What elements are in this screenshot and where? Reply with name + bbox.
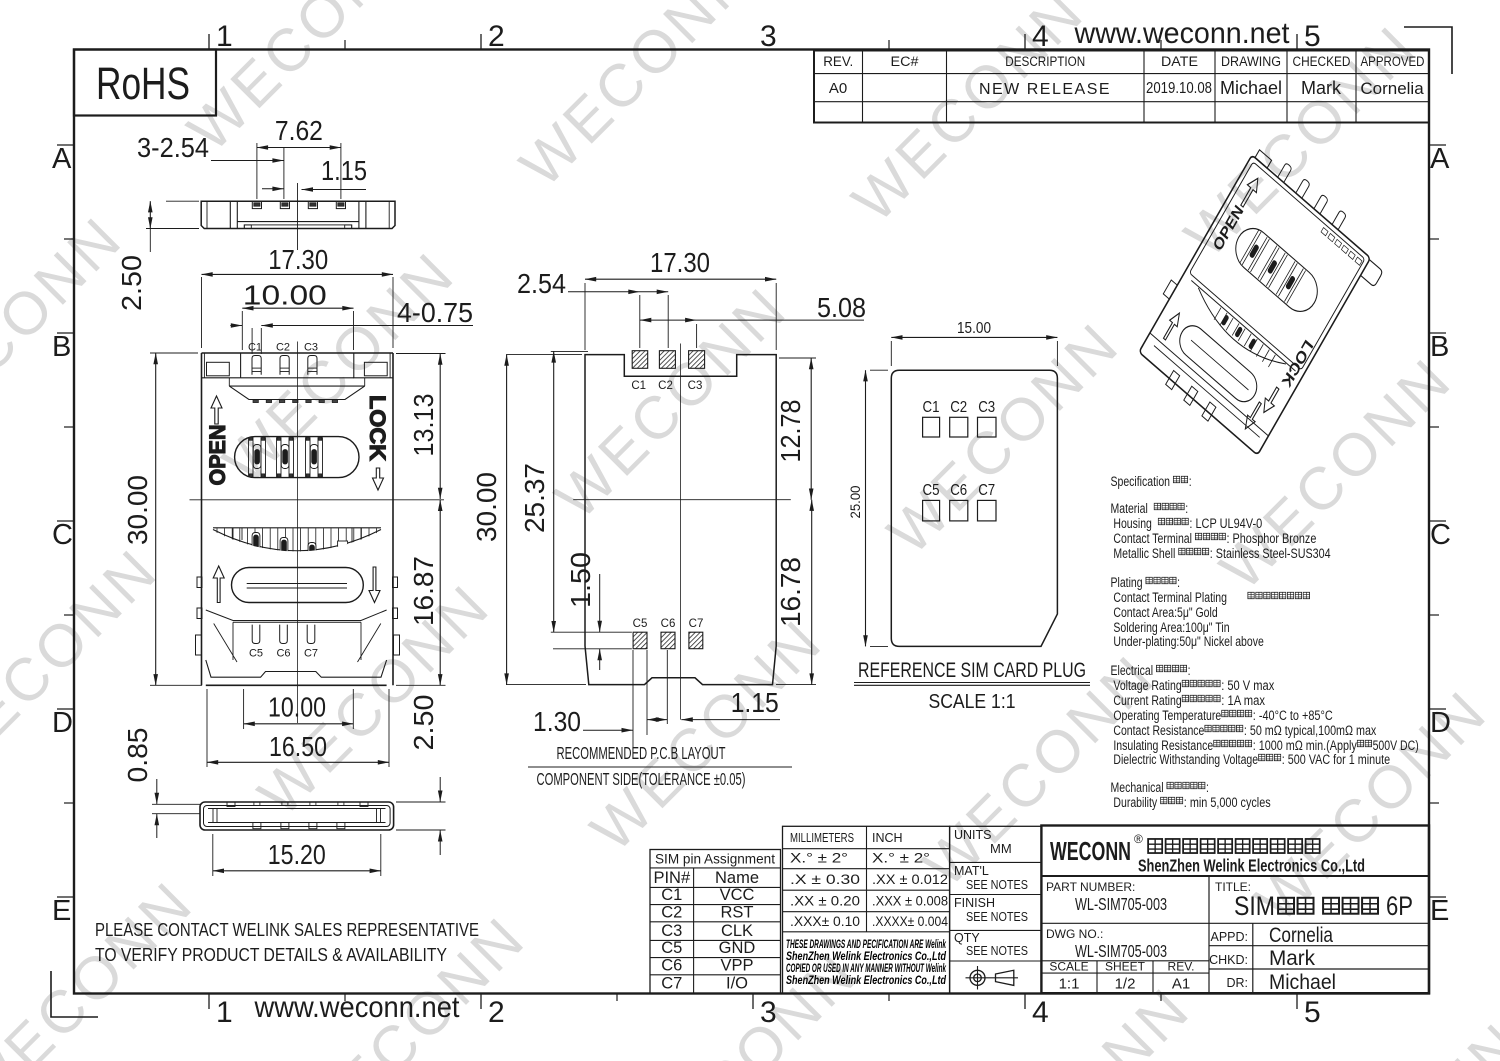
svg-text:2019.10.08: 2019.10.08 — [1146, 80, 1212, 97]
svg-text:C7: C7 — [661, 975, 682, 993]
svg-text:Voltage Rating: Voltage Rating — [1113, 678, 1181, 694]
svg-text:INCH: INCH — [872, 831, 903, 845]
svg-text::: : — [1188, 663, 1191, 679]
svg-text:C5: C5 — [661, 939, 682, 957]
svg-text:FINISH: FINISH — [954, 896, 995, 910]
svg-text:.XXX ± 0.008: .XXX ± 0.008 — [872, 893, 948, 909]
svg-text:30.00: 30.00 — [471, 472, 502, 542]
svg-text:13.13: 13.13 — [408, 394, 439, 457]
svg-text:I/O: I/O — [726, 975, 748, 993]
svg-text:APPROVED: APPROVED — [1361, 54, 1425, 69]
svg-text:CLK: CLK — [721, 922, 753, 940]
svg-text:C3: C3 — [304, 342, 318, 354]
svg-text:16.78: 16.78 — [775, 557, 806, 627]
svg-text:: 500 VAC for 1 minute: : 500 VAC for 1 minute — [1282, 752, 1390, 768]
svg-text:5.08: 5.08 — [817, 292, 866, 323]
svg-text:17.30: 17.30 — [268, 244, 328, 275]
svg-text:4: 4 — [1032, 996, 1049, 1029]
svg-text:Metallic Shell: Metallic Shell — [1113, 546, 1175, 562]
svg-text:B: B — [52, 331, 71, 363]
svg-text:A: A — [1430, 143, 1450, 175]
svg-text:CHKD:: CHKD: — [1209, 953, 1248, 967]
svg-text:Name: Name — [715, 869, 759, 887]
svg-text::: : — [1185, 501, 1188, 517]
svg-text:DR:: DR: — [1226, 976, 1248, 990]
svg-text:C1: C1 — [661, 886, 682, 904]
svg-text:®: ® — [1134, 832, 1143, 846]
svg-text:COMPONENT SIDE(TOLERANCE ±0.05: COMPONENT SIDE(TOLERANCE ±0.05) — [537, 769, 746, 789]
svg-text:30.00: 30.00 — [122, 475, 153, 545]
svg-text:Housing: Housing — [1113, 516, 1152, 532]
svg-text:C7: C7 — [689, 618, 704, 630]
svg-text:6P: 6P — [1386, 891, 1413, 921]
svg-text::: : — [1189, 474, 1192, 490]
svg-text:SHEET: SHEET — [1105, 960, 1146, 974]
svg-text:OPEN: OPEN — [205, 425, 230, 486]
svg-text:10.00: 10.00 — [243, 280, 327, 311]
svg-text:Mechanical: Mechanical — [1111, 780, 1164, 796]
svg-text:Contact Terminal Plating: Contact Terminal Plating — [1113, 590, 1227, 606]
svg-text:MM: MM — [990, 841, 1012, 856]
svg-text:: Stainless Steel-SUS304: : Stainless Steel-SUS304 — [1210, 546, 1331, 562]
svg-text:C3: C3 — [661, 922, 682, 940]
svg-text:C2: C2 — [276, 342, 290, 354]
svg-text:C1: C1 — [631, 380, 646, 392]
svg-text:DATE: DATE — [1161, 54, 1198, 69]
svg-text:C5: C5 — [923, 482, 940, 499]
svg-text:3: 3 — [760, 20, 777, 53]
svg-text:17.30: 17.30 — [650, 247, 710, 278]
svg-text:C: C — [1430, 519, 1451, 551]
svg-text:C3: C3 — [688, 380, 703, 392]
svg-text:COPIED OR USED IN ANY MANNER W: COPIED OR USED IN ANY MANNER WITHOUT Wel… — [786, 963, 946, 975]
svg-text:C5: C5 — [633, 618, 648, 630]
svg-text:www.weconn.net: www.weconn.net — [1074, 17, 1291, 50]
svg-text:C1: C1 — [248, 342, 262, 354]
svg-text:1:1: 1:1 — [1059, 976, 1080, 993]
svg-text:Operating Temperature: Operating Temperature — [1113, 708, 1221, 724]
svg-text:: Phosphor Bronze: : Phosphor Bronze — [1227, 531, 1317, 547]
svg-text:2.54: 2.54 — [517, 268, 566, 299]
svg-text:RoHS: RoHS — [96, 58, 190, 109]
svg-text:DESCRIPTION: DESCRIPTION — [1005, 54, 1085, 69]
svg-text:REV.: REV. — [823, 54, 853, 69]
svg-text:1.15: 1.15 — [731, 687, 779, 718]
svg-text:2: 2 — [488, 20, 505, 53]
svg-text::: : — [1177, 575, 1180, 591]
svg-text:E: E — [1430, 895, 1449, 927]
svg-text:.XX ± 0.012: .XX ± 0.012 — [872, 871, 948, 887]
svg-text:C7: C7 — [304, 648, 318, 660]
svg-text:2: 2 — [488, 996, 505, 1029]
svg-text:Plating: Plating — [1111, 575, 1143, 591]
svg-text:Dielectric Withstanding Voltag: Dielectric Withstanding Voltage — [1113, 752, 1258, 768]
svg-text:.XXXX± 0.004: .XXXX± 0.004 — [872, 913, 948, 929]
svg-text:Michael: Michael — [1269, 971, 1336, 994]
svg-text:SEE NOTES: SEE NOTES — [966, 909, 1028, 924]
svg-text:PIN#: PIN# — [653, 869, 691, 887]
svg-text:X.° ± 2°: X.° ± 2° — [872, 850, 930, 866]
svg-text:PART NUMBER:: PART NUMBER: — [1046, 880, 1135, 894]
svg-text:SCALE 1:1: SCALE 1:1 — [929, 690, 1016, 713]
svg-text:UNITS: UNITS — [954, 828, 992, 842]
svg-text:RST: RST — [721, 903, 754, 921]
svg-text:www.weconn.net: www.weconn.net — [254, 991, 461, 1024]
svg-text:PLEASE CONTACT WELINK SALES RE: PLEASE CONTACT WELINK SALES REPRESENTATI… — [95, 919, 479, 940]
svg-text:Current Rating: Current Rating — [1113, 693, 1181, 709]
svg-text:Cornelia: Cornelia — [1360, 79, 1424, 98]
svg-text:X.° ± 2°: X.° ± 2° — [790, 850, 848, 866]
svg-text:C5: C5 — [249, 648, 263, 660]
svg-text:C2: C2 — [950, 399, 967, 416]
svg-text:1.30: 1.30 — [533, 706, 581, 737]
svg-text:TO VERIFY PRODUCT DETAILS & AV: TO VERIFY PRODUCT DETAILS & AVAILABILITY — [95, 944, 447, 965]
svg-text:2.50: 2.50 — [116, 255, 147, 311]
svg-text:ShenZhen Welink Electronics Co: ShenZhen Welink Electronics Co.,Ltd — [786, 951, 947, 963]
svg-text:Contact Area:5μ" Gold: Contact Area:5μ" Gold — [1113, 605, 1217, 621]
svg-text:A0: A0 — [829, 80, 847, 97]
svg-text:D: D — [52, 707, 73, 739]
svg-text:: -40°C to +85°C: : -40°C to +85°C — [1253, 708, 1333, 724]
svg-text:APPD:: APPD: — [1210, 930, 1248, 944]
svg-text:DRAWING: DRAWING — [1221, 54, 1281, 69]
svg-text:C: C — [52, 519, 73, 551]
svg-text:SIM: SIM — [1234, 891, 1275, 921]
svg-text:Contact Resistance: Contact Resistance — [1113, 723, 1204, 739]
svg-text:WECONN: WECONN — [1050, 836, 1131, 866]
svg-text:D: D — [1430, 707, 1451, 739]
svg-text:.XXX± 0.10: .XXX± 0.10 — [790, 913, 860, 929]
svg-text:ShenZhen Welink Electronics Co: ShenZhen Welink Electronics Co.,Ltd — [1138, 856, 1365, 876]
svg-text:C2: C2 — [661, 903, 682, 921]
svg-text:3-2.54: 3-2.54 — [137, 132, 209, 163]
svg-text:Durability: Durability — [1113, 795, 1157, 811]
svg-text:: LCP UL94V-0: : LCP UL94V-0 — [1189, 516, 1262, 532]
svg-text:1.50: 1.50 — [565, 552, 596, 608]
svg-text:ShenZhen Welink Electronics Co: ShenZhen Welink Electronics Co.,Ltd — [786, 975, 947, 987]
svg-text:C6: C6 — [661, 956, 682, 974]
svg-text:C7: C7 — [978, 482, 995, 499]
svg-text:2.50: 2.50 — [408, 695, 439, 751]
svg-text:E: E — [52, 895, 71, 927]
svg-text:A: A — [52, 143, 72, 175]
svg-text:CHECKED: CHECKED — [1293, 54, 1351, 69]
svg-text:Mark: Mark — [1269, 947, 1315, 970]
svg-text:MAT'L: MAT'L — [954, 864, 989, 878]
svg-text:Electrical: Electrical — [1111, 663, 1154, 679]
svg-text:1: 1 — [216, 20, 233, 53]
svg-text:: min 5,000 cycles: : min 5,000 cycles — [1184, 795, 1271, 811]
svg-text:Contact Terminal: Contact Terminal — [1113, 531, 1192, 547]
svg-text:4: 4 — [1032, 20, 1049, 53]
svg-text:25.37: 25.37 — [519, 463, 550, 533]
svg-text:10.00: 10.00 — [268, 692, 326, 723]
svg-text:.X ± 0.30: .X ± 0.30 — [790, 871, 860, 887]
svg-text:16.87: 16.87 — [408, 556, 439, 626]
svg-text:C6: C6 — [276, 648, 290, 660]
svg-text:15.20: 15.20 — [268, 839, 326, 870]
svg-text:Mark: Mark — [1301, 78, 1342, 98]
svg-text:.XX ± 0.20: .XX ± 0.20 — [790, 893, 860, 909]
svg-text:C6: C6 — [661, 618, 676, 630]
svg-text:1.15: 1.15 — [321, 155, 367, 186]
svg-text:3: 3 — [760, 996, 777, 1029]
svg-text:GND: GND — [719, 939, 756, 957]
svg-text:1/2: 1/2 — [1115, 976, 1136, 993]
svg-text:0.85: 0.85 — [122, 728, 153, 783]
svg-text:RECOMMENDED P.C.B LAYOUT: RECOMMENDED P.C.B LAYOUT — [557, 743, 726, 763]
svg-text:: 50 mΩ typical,100mΩ max: : 50 mΩ typical,100mΩ max — [1244, 723, 1376, 739]
svg-text:: 50 V max: : 50 V max — [1221, 678, 1274, 694]
svg-text:NEW RELEASE: NEW RELEASE — [979, 81, 1111, 98]
svg-text:WL-SIM705-003: WL-SIM705-003 — [1075, 894, 1167, 914]
svg-text:Specification: Specification — [1111, 474, 1171, 490]
svg-text:7.62: 7.62 — [275, 115, 323, 146]
svg-text:C1: C1 — [923, 399, 940, 416]
svg-text::: : — [1206, 780, 1209, 796]
svg-text:VCC: VCC — [720, 886, 755, 904]
svg-text:: 1A max: : 1A max — [1221, 693, 1265, 709]
svg-text:Material: Material — [1111, 501, 1148, 517]
svg-text:15.00: 15.00 — [957, 320, 991, 337]
svg-text:SEE NOTES: SEE NOTES — [966, 943, 1028, 958]
svg-text:12.78: 12.78 — [775, 400, 806, 463]
svg-text:SEE NOTES: SEE NOTES — [966, 877, 1028, 892]
svg-text:5: 5 — [1304, 20, 1321, 53]
svg-text:Cornelia: Cornelia — [1269, 924, 1333, 947]
svg-text:5: 5 — [1304, 996, 1321, 1029]
svg-text:DWG NO.:: DWG NO.: — [1046, 927, 1103, 941]
svg-text:A1: A1 — [1172, 976, 1190, 993]
svg-text:B: B — [1430, 331, 1449, 363]
svg-text:C2: C2 — [658, 380, 673, 392]
svg-text:16.50: 16.50 — [269, 731, 327, 762]
svg-text:REV.: REV. — [1168, 960, 1195, 974]
svg-text:Under-plating:50μ" Nickel abov: Under-plating:50μ" Nickel above — [1113, 634, 1263, 650]
svg-text:THESE DRAWINGS AND PECIFICATIO: THESE DRAWINGS AND PECIFICATION ARE Weli… — [786, 939, 946, 951]
svg-text:SCALE: SCALE — [1049, 960, 1088, 974]
svg-text:MILLIMETERS: MILLIMETERS — [790, 831, 854, 845]
svg-text:LOCK: LOCK — [365, 395, 390, 461]
svg-text:C3: C3 — [978, 399, 995, 416]
svg-text:4-0.75: 4-0.75 — [397, 297, 473, 328]
svg-text:REFERENCE SIM CARD PLUG: REFERENCE SIM CARD PLUG — [858, 658, 1086, 682]
svg-text:1: 1 — [216, 996, 233, 1029]
svg-text:VPP: VPP — [720, 956, 753, 974]
svg-text:C6: C6 — [950, 482, 967, 499]
svg-text:EC#: EC# — [891, 54, 920, 69]
svg-text:WL-SIM705-003: WL-SIM705-003 — [1075, 941, 1167, 961]
svg-text:Michael: Michael — [1220, 78, 1282, 98]
svg-text:25.00: 25.00 — [848, 486, 863, 519]
svg-text:SIM pin Assignment: SIM pin Assignment — [655, 852, 775, 867]
